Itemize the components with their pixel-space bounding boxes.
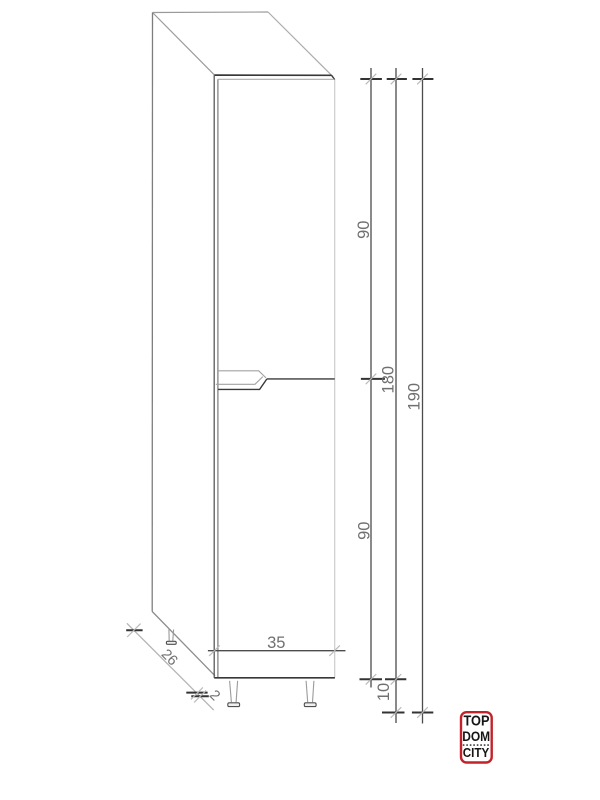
- svg-text:35: 35: [267, 634, 285, 652]
- svg-text:90: 90: [355, 221, 373, 239]
- svg-text:DOM: DOM: [462, 729, 490, 745]
- svg-text:CITY: CITY: [463, 745, 490, 760]
- svg-text:2: 2: [206, 687, 223, 704]
- svg-text:90: 90: [355, 522, 373, 540]
- svg-text:190: 190: [406, 383, 424, 411]
- svg-text:180: 180: [380, 366, 398, 394]
- svg-text:TOP: TOP: [464, 713, 490, 730]
- svg-text:10: 10: [375, 683, 393, 701]
- svg-text:26: 26: [158, 646, 181, 669]
